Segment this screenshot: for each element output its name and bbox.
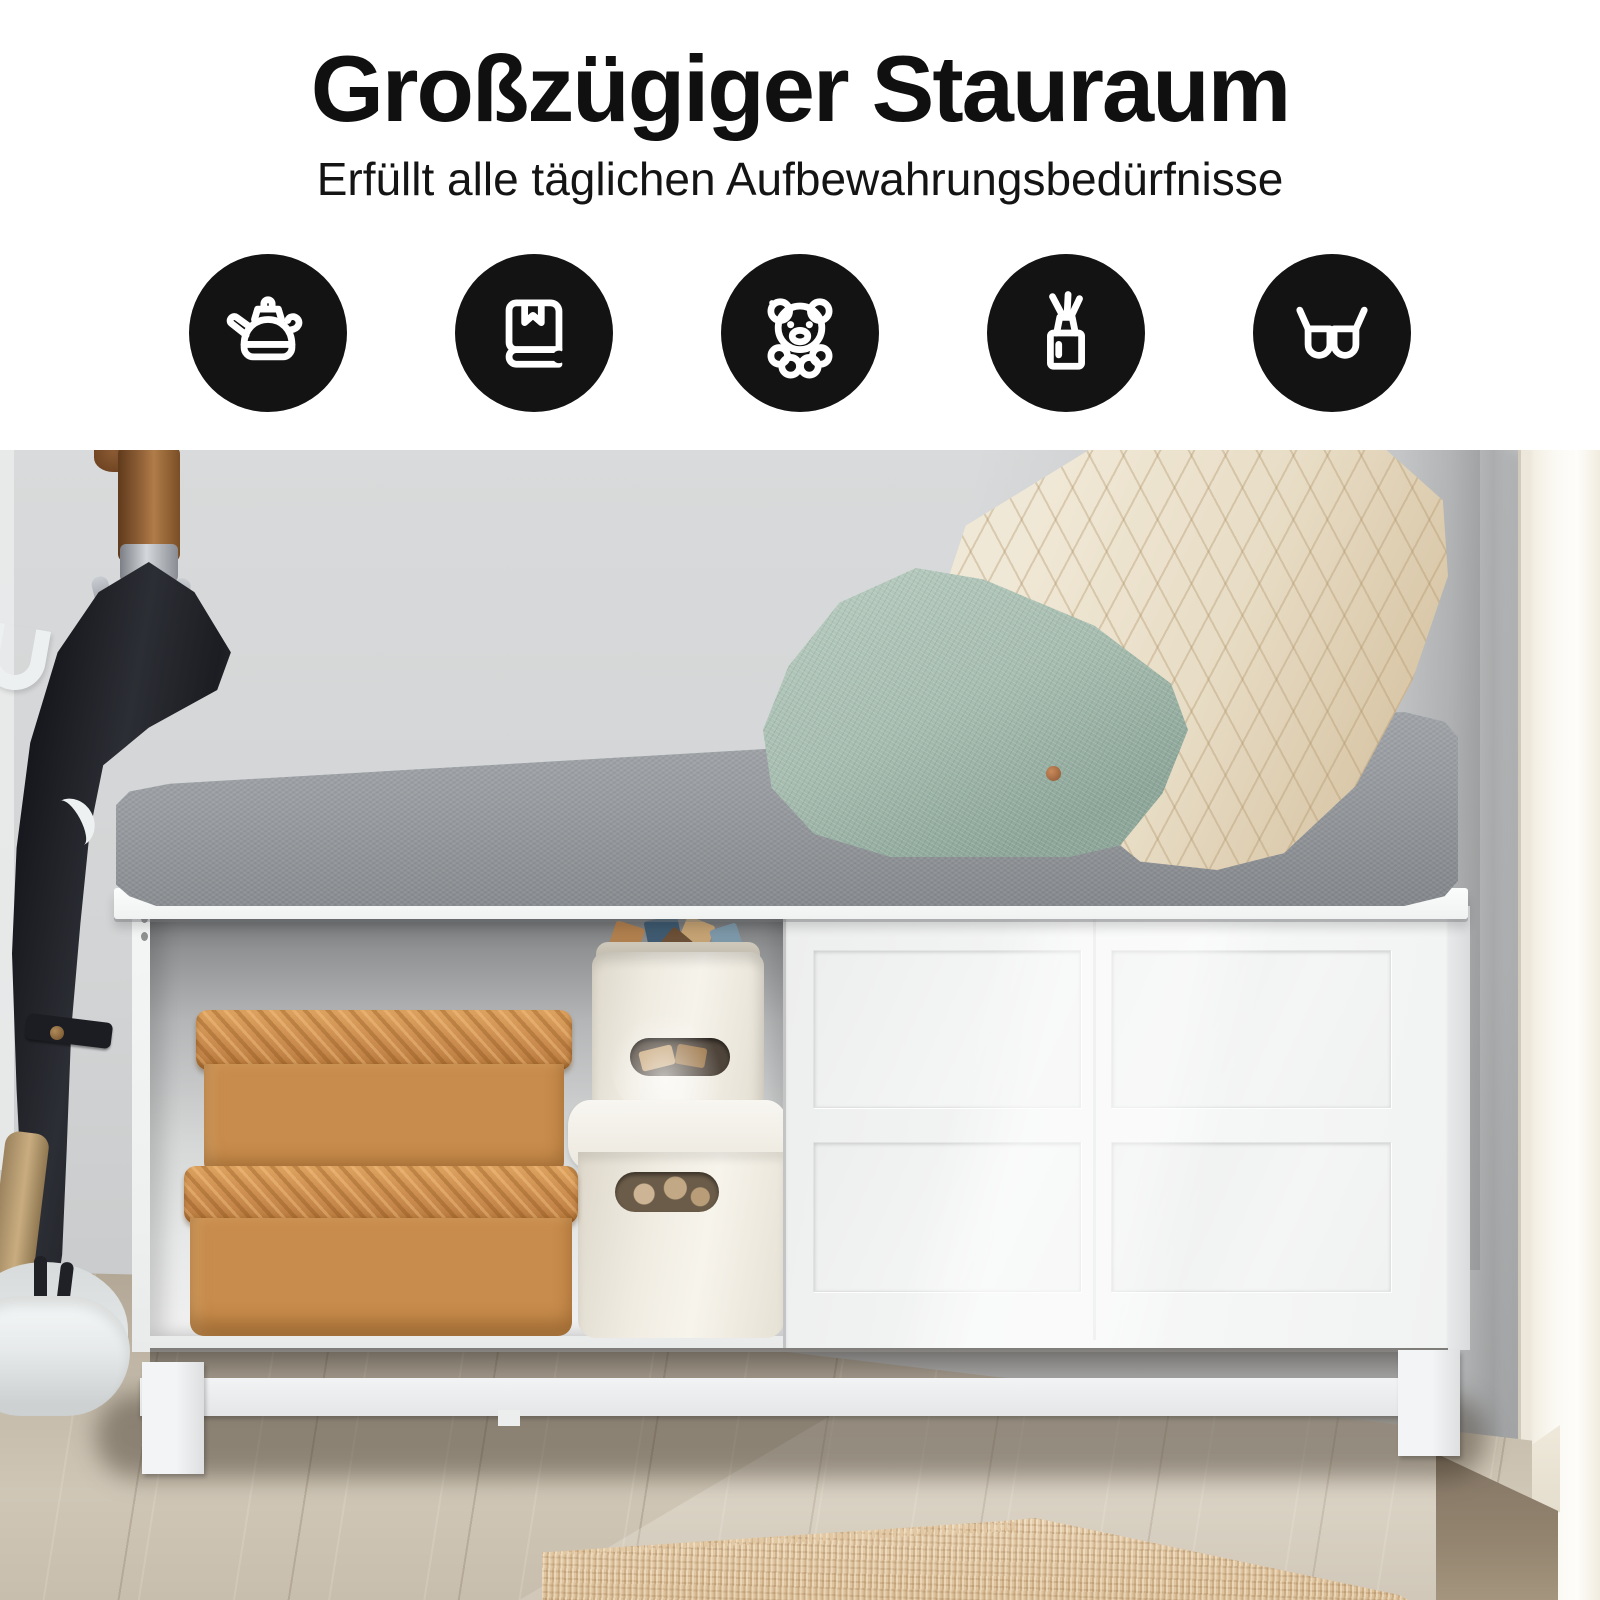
- rattan-basket-bottom-lid: [184, 1166, 578, 1224]
- umbrella-strap-button: [50, 1026, 64, 1040]
- bench-leg-right: [1398, 1350, 1460, 1456]
- bench-side-panel: [1448, 906, 1470, 1350]
- hallway-bench-photo: [0, 450, 1600, 1600]
- bench-leg-left: [142, 1362, 204, 1474]
- sliding-door: [783, 908, 1448, 1348]
- shelf-pin-hole: [141, 932, 148, 941]
- rattan-basket-bottom: [190, 1218, 572, 1336]
- header: Großzügiger Stauraum Erfüllt alle täglic…: [0, 0, 1600, 450]
- bench-base-rail: [140, 1378, 1448, 1416]
- door-light-reflection: [786, 908, 1448, 1348]
- bin-handle-cutout: [615, 1172, 719, 1212]
- rattan-basket-top: [204, 1064, 564, 1176]
- under-bench-shadow: [150, 1348, 1448, 1382]
- pillow-tag: [1046, 766, 1061, 781]
- teddy-bear-icon: [721, 254, 879, 412]
- reed-diffuser-icon: [987, 254, 1145, 412]
- kettle-icon: [189, 254, 347, 412]
- rattan-basket-top-lid: [196, 1010, 572, 1070]
- page-title: Großzügiger Stauraum: [0, 40, 1600, 138]
- feature-icons-row: [0, 254, 1600, 412]
- bench-foot-middle: [498, 1410, 520, 1426]
- product-feature-image: Großzügiger Stauraum Erfüllt alle täglic…: [0, 0, 1600, 1600]
- glasses-icon: [1253, 254, 1411, 412]
- book-icon: [455, 254, 613, 412]
- wall-light-edge: [0, 450, 14, 1170]
- page-subtitle: Erfüllt alle täglichen Aufbewahrungsbedü…: [0, 152, 1600, 206]
